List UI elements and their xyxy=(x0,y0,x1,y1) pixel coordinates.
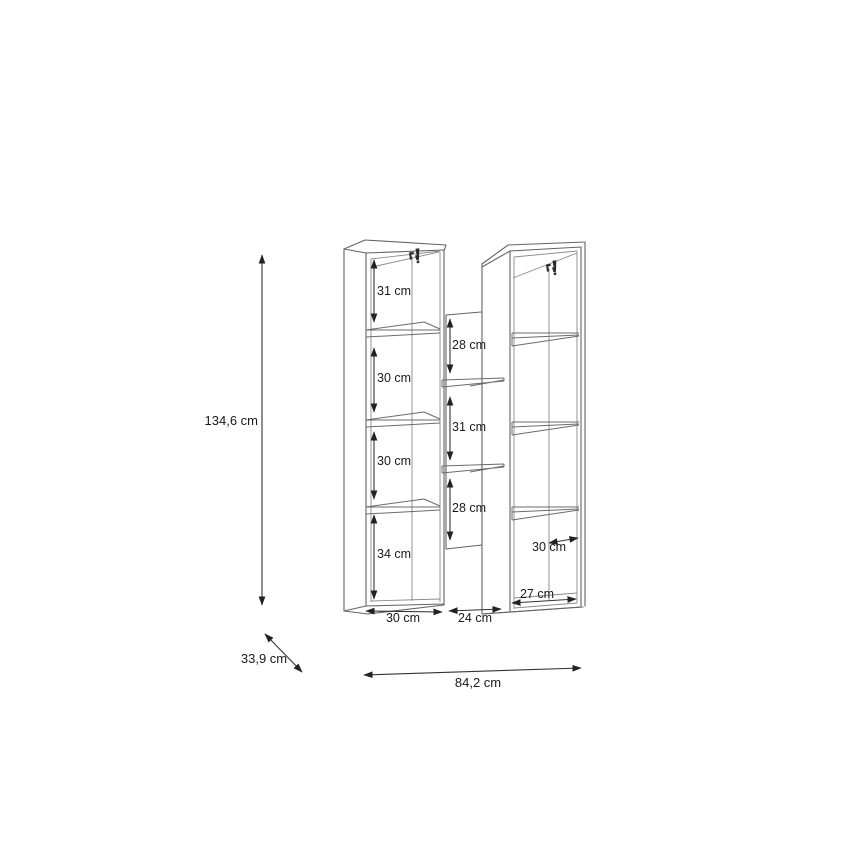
middle-compartment-2-label: 31 cm xyxy=(452,420,486,434)
left-bottom-width-label: 30 cm xyxy=(386,611,420,625)
left-unit-shelves xyxy=(366,322,440,514)
left-compartment-3-label: 30 cm xyxy=(377,454,411,468)
middle-compartment-1-label: 28 cm xyxy=(452,338,486,352)
right-bottom-width-label: 27 cm xyxy=(520,587,554,601)
drawing-canvas: 134,6 cm 33,9 cm 84,2 cm 31 cm 30 cm 30 … xyxy=(0,0,868,868)
wall-mount-bracket-icon xyxy=(409,248,419,263)
total-height-label: 134,6 cm xyxy=(205,413,258,428)
right-unit-shelves xyxy=(512,333,579,520)
total-depth-label: 33,9 cm xyxy=(241,651,287,666)
right-shelf-unit xyxy=(482,242,585,614)
wall-mount-bracket-icon xyxy=(546,260,556,275)
left-compartment-2-label: 30 cm xyxy=(377,371,411,385)
left-compartment-1-label: 31 cm xyxy=(377,284,411,298)
middle-bottom-width-label: 24 cm xyxy=(458,611,492,625)
furniture-dimension-drawing: 134,6 cm 33,9 cm 84,2 cm 31 cm 30 cm 30 … xyxy=(0,0,868,868)
total-width-arrow xyxy=(364,668,581,675)
middle-compartment-3-label: 28 cm xyxy=(452,501,486,515)
right-inner-width-label: 30 cm xyxy=(532,540,566,554)
total-width-label: 84,2 cm xyxy=(455,675,501,690)
left-compartment-4-label: 34 cm xyxy=(377,547,411,561)
dimension-arrows xyxy=(262,255,581,675)
